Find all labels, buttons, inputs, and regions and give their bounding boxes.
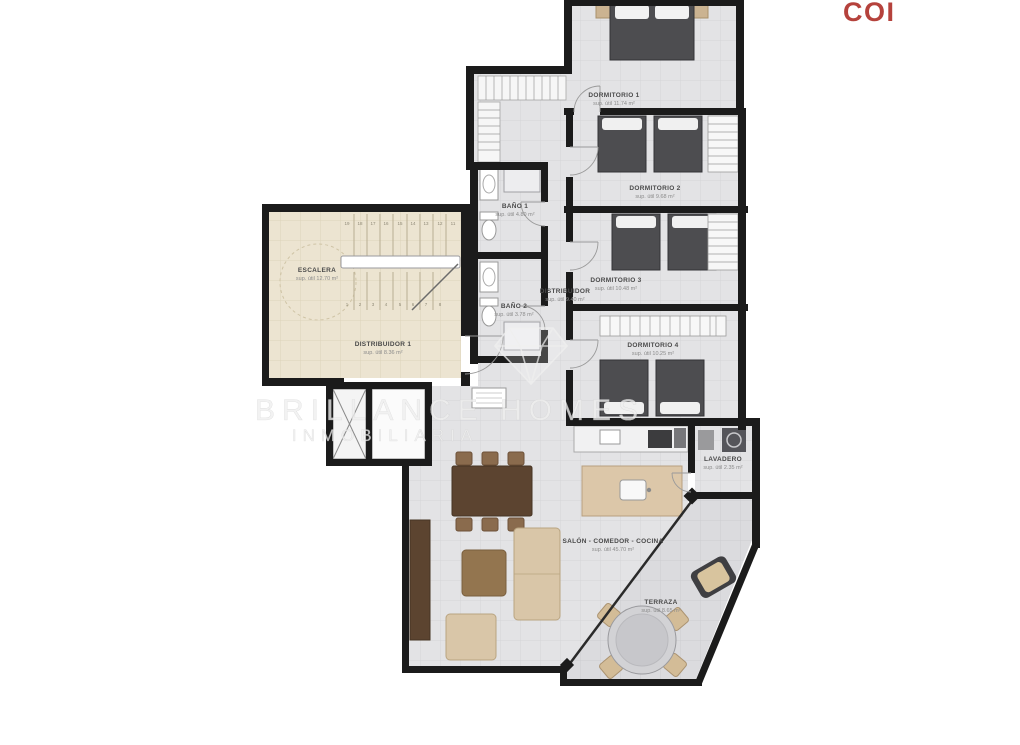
pillow xyxy=(616,216,656,228)
watermark-subtitle: INMOBILIARIA xyxy=(292,426,478,445)
tread-number: 17 xyxy=(370,221,376,226)
tread-number: 13 xyxy=(423,221,429,226)
laundry-fixtures xyxy=(698,428,746,452)
floorplan-canvas: COI xyxy=(0,0,1020,745)
tread-number: 16 xyxy=(383,221,389,226)
pillow xyxy=(602,118,642,130)
watermark-title: BRILLANCE HOMES xyxy=(255,394,645,427)
room-area-bano1: sup. útil 4.80 m² xyxy=(495,212,534,218)
round-table-top xyxy=(616,614,668,666)
chair xyxy=(508,452,524,465)
appliance xyxy=(674,428,686,448)
room-label-bano2: BAÑO 2 xyxy=(501,301,527,310)
tread-number: 12 xyxy=(437,221,443,226)
room-area-terraza: sup. útil 8.65 m² xyxy=(641,608,680,614)
armchair xyxy=(462,550,506,596)
island-sink xyxy=(620,480,646,500)
toilet-tank xyxy=(480,298,498,306)
room-area-dormitorio1: sup. útil 11.74 m² xyxy=(593,101,635,107)
room-area-dormitorio2: sup. útil 9.68 m² xyxy=(635,194,674,200)
toilet xyxy=(482,220,496,240)
room-area-lavadero: sup. útil 2.35 m² xyxy=(703,465,742,471)
chair xyxy=(482,452,498,465)
floorplan-drawing: 19 18 17 16 15 14 13 12 11 1 2 3 4 5 6 7… xyxy=(0,0,1020,745)
pillow xyxy=(615,5,649,19)
wardrobe xyxy=(708,214,738,270)
room-label-distribuidor1: DISTRIBUIDOR 1 xyxy=(355,341,412,348)
room-label-terraza: TERRAZA xyxy=(644,599,677,606)
chair xyxy=(482,518,498,531)
pillow xyxy=(658,118,698,130)
room-label-salon: SALÓN - COMEDOR - COCINA xyxy=(562,536,663,545)
room-area-salon: sup. útil 45.70 m² xyxy=(592,547,634,553)
room-area-escalera: sup. útil 12.70 m² xyxy=(296,276,338,282)
bedroom3-furniture xyxy=(612,214,738,270)
room-area-dormitorio4: sup. útil 10.25 m² xyxy=(632,351,674,357)
room-label-dormitorio1: DORMITORIO 1 xyxy=(588,92,639,99)
tread-number: 18 xyxy=(357,221,363,226)
wardrobe xyxy=(708,116,738,172)
room-area-distribuidor1: sup. útil 8.36 m² xyxy=(363,350,402,356)
tread-number: 19 xyxy=(344,221,350,226)
washing-machine xyxy=(722,428,746,452)
chair xyxy=(456,452,472,465)
room-label-dormitorio3: DORMITORIO 3 xyxy=(590,277,641,284)
room-label-lavadero: LAVADERO xyxy=(704,456,742,463)
cooktop xyxy=(648,430,672,448)
room-label-dormitorio2: DORMITORIO 2 xyxy=(629,185,680,192)
room-label-bano1: BAÑO 1 xyxy=(502,201,528,210)
wardrobe xyxy=(600,316,726,336)
dining-set xyxy=(452,452,532,531)
armchair xyxy=(446,614,496,660)
pillow xyxy=(672,216,712,228)
room-area-distribuidor: sup. útil 9.40 m² xyxy=(545,297,584,303)
room-area-bano2: sup. útil 3.78 m² xyxy=(494,312,533,318)
room-label-escalera: ESCALERA xyxy=(298,267,336,274)
room-area-dormitorio3: sup. útil 10.48 m² xyxy=(595,286,637,292)
pillow xyxy=(655,5,689,19)
kitchen-sink xyxy=(600,430,620,444)
room-label-dormitorio4: DORMITORIO 4 xyxy=(627,342,678,349)
tread-number: 15 xyxy=(397,221,403,226)
appliance xyxy=(698,430,714,450)
chair xyxy=(456,518,472,531)
dining-table xyxy=(452,466,532,516)
bedroom2-furniture xyxy=(598,116,738,172)
faucet xyxy=(647,488,651,492)
tread-number: 11 xyxy=(451,221,456,226)
pillow xyxy=(660,402,700,414)
bedroom1-furniture xyxy=(596,2,708,60)
room-label-distribuidor: DISTRIBUIDOR xyxy=(540,288,591,295)
stair-handrail xyxy=(341,256,460,268)
tread-number: 14 xyxy=(410,221,416,226)
tv-unit xyxy=(410,520,430,640)
